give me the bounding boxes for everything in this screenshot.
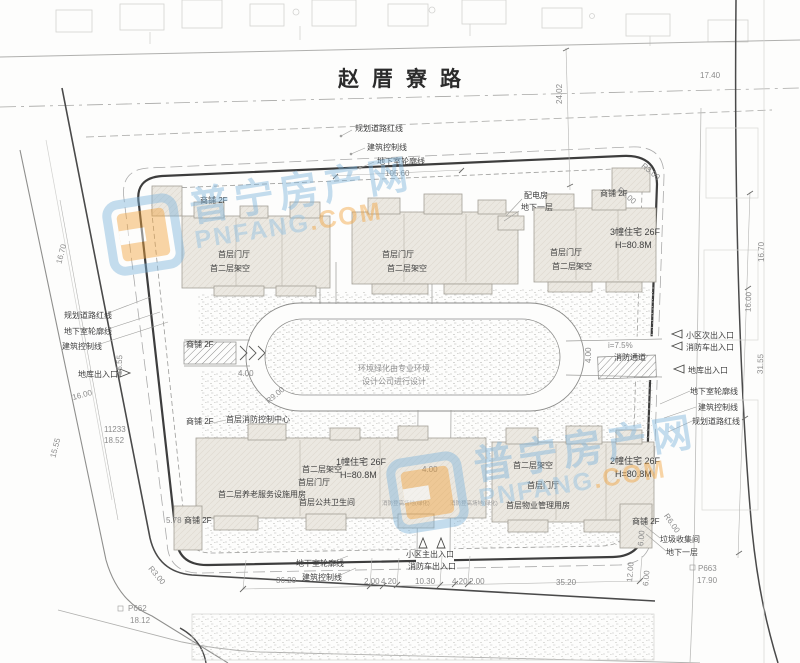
label-basement-outline-top: 地下室轮廓线 xyxy=(377,156,425,166)
dim-4-20-a: 4.20 xyxy=(381,577,397,586)
dim-105-60: 105.60 xyxy=(385,169,410,178)
label-building-control-top: 建筑控制线 xyxy=(367,142,407,152)
label-n3-lobby: 首层门厅 xyxy=(550,247,582,257)
label-n1-stilt: 首二层架空 xyxy=(210,263,250,273)
label-elder-care: 首二层养老服务设施用房 xyxy=(218,489,306,499)
dim-4-00-c: 4.00 xyxy=(584,347,593,363)
dim-5-78: 5.78 xyxy=(166,516,182,525)
label-basement-outline-right: 地下室轮廓线 xyxy=(690,386,738,396)
marker-p663-elev: 17.90 xyxy=(697,576,718,585)
label-shop-2f-left-upper: 商铺 2F xyxy=(186,339,214,349)
label-shop-2f-left-lower: 商铺 2F xyxy=(186,416,214,426)
planning-red-line-top xyxy=(86,110,772,137)
dim-35-20: 35.20 xyxy=(556,578,577,587)
context-buildings-top xyxy=(56,0,748,46)
dim-r3-bottomleft: R3.00 xyxy=(146,564,167,587)
label-building-control-right: 建筑控制线 xyxy=(698,402,738,412)
building-north-2 xyxy=(352,194,518,294)
dim-16-70-topright: 16.70 xyxy=(757,241,766,262)
secondary-entry-arrow xyxy=(672,330,682,338)
right-road-east-edge xyxy=(736,0,778,663)
note-greening-1: 环境绿化由专业环境 xyxy=(358,363,430,373)
shop-top-left xyxy=(152,186,182,216)
label-basement-outline-left: 地下室轮廓线 xyxy=(64,326,112,336)
dim-15-55-b: 15.55 xyxy=(49,437,63,459)
label-planning-red-line-top: 规划道路红线 xyxy=(355,123,403,133)
garage-entry-arrow-right xyxy=(674,365,684,373)
power-room-box xyxy=(498,216,524,230)
label-fire-entry-bottom: 消防车出入口 xyxy=(408,561,456,571)
plan-canvas: 赵厝寮路 规划道路红线 建筑控制线 地下室轮廓线 105.60 24.02 17… xyxy=(0,0,800,663)
label-s2-stilt: 首二层架空 xyxy=(513,460,553,470)
road-name: 赵厝寮路 xyxy=(337,67,474,91)
marker-p662: P662 xyxy=(128,604,147,613)
label-fire-entry-right: 消防车出入口 xyxy=(686,342,734,352)
label-secondary-entry: 小区次出入口 xyxy=(686,330,734,340)
label-n3-stilt: 首二层架空 xyxy=(552,261,592,271)
fire-entry-arrow-right xyxy=(672,342,682,350)
dim-4-00-b: 4.00 xyxy=(422,465,438,474)
context-parcel-bottom xyxy=(192,614,654,660)
dim-10-30: 10.30 xyxy=(415,577,436,586)
dim-6-00-a: 6.00 xyxy=(636,530,646,547)
label-property-mgmt: 首层物业管理用房 xyxy=(506,500,570,510)
dim-4-20-b: 4.20 xyxy=(452,577,468,586)
label-fire-control-room: 首层消防控制中心 xyxy=(226,414,290,424)
dim-16-70-left: 16.70 xyxy=(55,243,69,265)
label-garbage-room: 垃圾收集间 xyxy=(660,534,700,544)
label-shop-2f-top-left: 商铺 2F xyxy=(200,195,228,205)
marker-p662-elev: 18.12 xyxy=(130,616,151,625)
dim-24-02: 24.02 xyxy=(555,83,564,104)
dim-r6-00: R6.00 xyxy=(662,512,682,535)
note-greening-2: 设计公司进行设计 xyxy=(362,376,426,386)
label-s2-height: H=80.8M xyxy=(615,469,652,479)
label-garbage-floor: 地下一层 xyxy=(666,547,698,557)
label-s2-lobby: 首层门厅 xyxy=(527,480,559,490)
dim-16-00-left: 16.00 xyxy=(71,388,93,402)
label-s1-name: 1幢住宅 26F xyxy=(336,456,387,467)
label-s1-lobby: 首层门厅 xyxy=(298,477,330,487)
label-shop-2f-bottom-right: 商铺 2F xyxy=(632,516,660,526)
dim-2-00-b: 2.00 xyxy=(469,577,485,586)
label-power-room-floor: 地下一层 xyxy=(521,202,553,212)
shop-bottom-left xyxy=(174,506,202,550)
site-plan-drawing: 赵厝寮路 规划道路红线 建筑控制线 地下室轮廓线 105.60 24.02 17… xyxy=(0,0,800,663)
label-garage-entry-right: 地库出入口 xyxy=(688,365,728,375)
dim-31-55: 31.55 xyxy=(756,353,766,374)
label-n3-name: 3幢住宅 26F xyxy=(610,226,661,237)
dim-16-00-right: 16.00 xyxy=(744,291,754,312)
label-shop-2f-bottom-left: 商铺 2F xyxy=(184,515,212,525)
label-s2-name: 2幢住宅 26F xyxy=(610,455,661,466)
dim-2-00-a: 2.00 xyxy=(364,577,380,586)
label-building-control-left: 建筑控制线 xyxy=(62,341,102,351)
dim-6-00-b: 6.00 xyxy=(641,570,651,587)
label-n1-lobby: 首层门厅 xyxy=(218,249,250,259)
label-planning-red-line-left: 规划道路红线 xyxy=(64,310,112,320)
dim-15-55-a: 15.55 xyxy=(115,354,125,375)
dim-4-00-a: 4.00 xyxy=(238,369,254,378)
label-n2-lobby: 首层门厅 xyxy=(382,249,414,259)
road-north-edge xyxy=(0,40,800,57)
marker-18-52: 18.52 xyxy=(104,436,125,445)
building-north-1 xyxy=(182,202,330,296)
label-n3-height: H=80.8M xyxy=(615,240,652,250)
marker-p663: P663 xyxy=(698,564,717,573)
dim-17-40: 17.40 xyxy=(700,71,721,80)
label-public-wc: 首层公共卫生间 xyxy=(299,497,355,507)
label-s1-height: H=80.8M xyxy=(340,470,377,480)
label-planning-red-line-right: 规划道路红线 xyxy=(692,416,740,426)
dim-36-20: 36.20 xyxy=(276,576,297,585)
label-basement-outline-bottom: 地下室轮廓线 xyxy=(296,558,344,568)
label-n2-stilt: 首二层架空 xyxy=(387,263,427,273)
dim-12-00: 12.00 xyxy=(625,561,636,582)
label-fire-field-a: 消防登高场地(绿化) xyxy=(382,499,430,507)
context-parcels-right xyxy=(702,128,758,510)
label-fire-lane: 消防通道 xyxy=(614,352,646,362)
label-slope: i=7.5% xyxy=(608,341,633,350)
label-garage-entry-left: 地库出入口 xyxy=(78,369,118,379)
marker-11233: 11233 xyxy=(104,425,126,434)
label-main-entry: 小区主出入口 xyxy=(406,549,454,559)
label-power-room: 配电房 xyxy=(524,190,548,200)
label-building-control-bottom: 建筑控制线 xyxy=(302,572,342,582)
label-fire-field-b: 消防登高场地(绿化) xyxy=(450,499,498,507)
